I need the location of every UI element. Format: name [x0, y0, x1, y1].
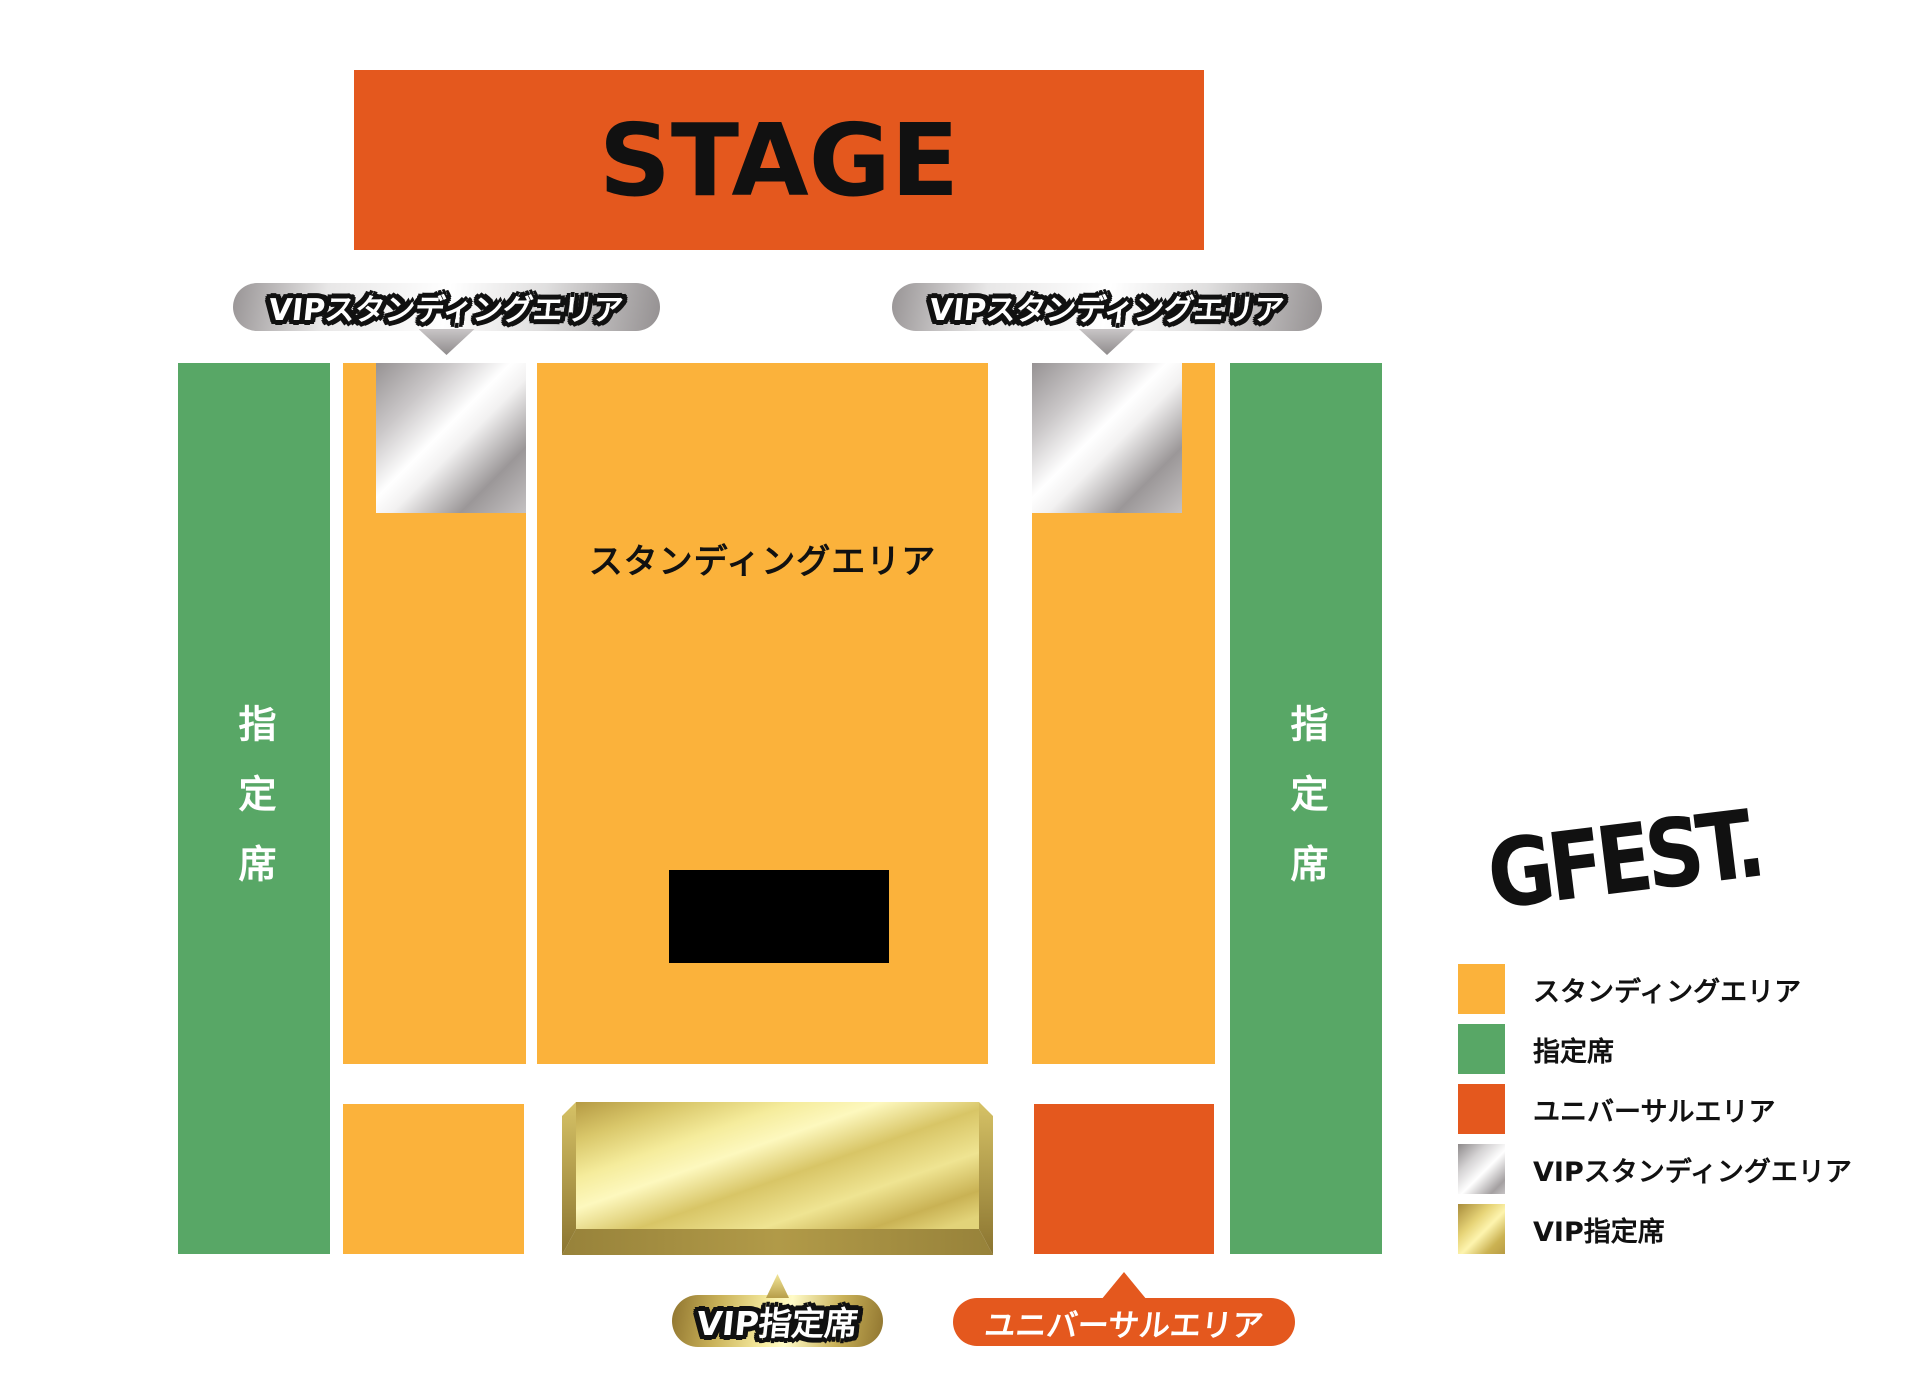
- legend-swatch-vip-reserved: [1458, 1204, 1505, 1254]
- reserved-strip-right-label: 指定席: [1287, 704, 1325, 914]
- legend-item-vip-reserved: VIP指定席: [1458, 1204, 1920, 1254]
- legend-label: 指定席: [1533, 1030, 1614, 1069]
- standing-block-bottom-left: [343, 1104, 524, 1254]
- standing-area-center: スタンディングエリア: [537, 363, 988, 1064]
- standing-area-label: スタンディングエリア: [589, 534, 937, 583]
- pa-booth: [669, 870, 889, 963]
- callout-pointer-up-icon: [1101, 1272, 1147, 1300]
- gfest-logo-icon: GFEST.: [1478, 772, 1770, 934]
- vip-reserved-callout-label: VIP指定席: [694, 1297, 860, 1345]
- universal-area-callout: ユニバーサルエリア: [953, 1298, 1295, 1346]
- legend-swatch-universal: [1458, 1084, 1505, 1134]
- gfest-logo-text: GFEST.: [1482, 790, 1765, 931]
- legend-item-reserved: 指定席: [1458, 1024, 1920, 1074]
- legend-label: ユニバーサルエリア: [1533, 1090, 1775, 1129]
- vip-standing-callout-right-label: VIPスタンディングエリア: [928, 285, 1287, 329]
- universal-area-callout-label: ユニバーサルエリア: [982, 1300, 1265, 1345]
- vip-reserved-box: [562, 1102, 993, 1255]
- legend-item-standing: スタンディングエリア: [1458, 964, 1920, 1014]
- reserved-strip-right: 指定席: [1230, 363, 1382, 1254]
- stage-label: STAGE: [599, 102, 959, 219]
- legend-swatch-vip-standing: [1458, 1144, 1505, 1194]
- vip-standing-callout-right: VIPスタンディングエリア: [892, 283, 1322, 331]
- legend-label: VIPスタンディングエリア: [1533, 1150, 1852, 1189]
- legend-item-vip-standing: VIPスタンディングエリア: [1458, 1144, 1920, 1194]
- gfest-logo: GFEST.: [1478, 772, 1770, 934]
- standing-column-left: [343, 363, 526, 1064]
- reserved-strip-left: 指定席: [178, 363, 330, 1254]
- legend-label: スタンディングエリア: [1533, 970, 1801, 1009]
- callout-pointer-down-icon: [1079, 329, 1135, 355]
- callout-pointer-up-icon: [754, 1274, 802, 1298]
- reserved-strip-left-label: 指定席: [235, 704, 273, 914]
- vip-standing-callout-left-label: VIPスタンディングエリア: [267, 285, 626, 329]
- vip-standing-zone-left: [376, 363, 526, 513]
- legend-swatch-standing: [1458, 964, 1505, 1014]
- vip-standing-zone-right: [1032, 363, 1182, 513]
- vip-standing-callout-left: VIPスタンディングエリア: [233, 283, 660, 331]
- seating-map: STAGE VIPスタンディングエリア VIPスタンディングエリア 指定席 指定…: [0, 0, 1920, 1400]
- legend-item-universal: ユニバーサルエリア: [1458, 1084, 1920, 1134]
- legend: スタンディングエリア 指定席 ユニバーサルエリア VIPスタンディングエリア V…: [1458, 964, 1920, 1264]
- legend-swatch-reserved: [1458, 1024, 1505, 1074]
- universal-area-block: [1034, 1104, 1214, 1254]
- vip-reserved-callout: VIP指定席: [672, 1295, 883, 1347]
- callout-pointer-down-icon: [419, 329, 475, 355]
- stage-banner: STAGE: [354, 70, 1204, 250]
- gold-3d-box-icon: [562, 1102, 993, 1255]
- legend-label: VIP指定席: [1533, 1210, 1665, 1249]
- standing-column-right: [1032, 363, 1215, 1064]
